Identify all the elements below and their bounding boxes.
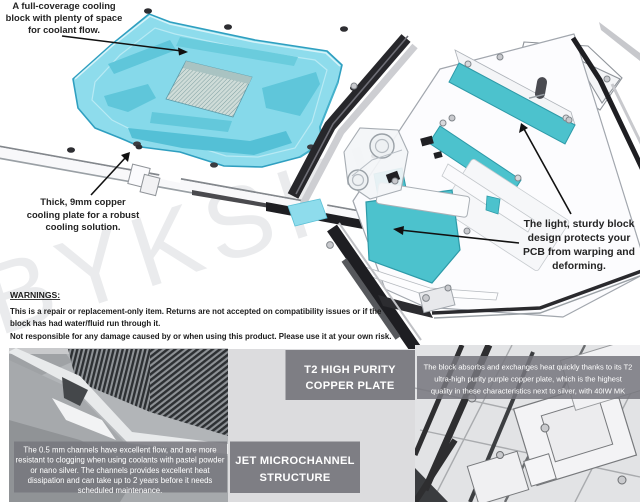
svg-text:STRUCTURE: STRUCTURE bbox=[259, 472, 330, 484]
svg-text:T2 HIGH PURITY: T2 HIGH PURITY bbox=[304, 364, 396, 376]
svg-text:quality in these characteristi: quality in these characteristics next to… bbox=[431, 387, 625, 396]
svg-text:deforming.: deforming. bbox=[552, 261, 606, 272]
svg-text:COPPER PLATE: COPPER PLATE bbox=[305, 380, 394, 392]
svg-text:The light, sturdy block: The light, sturdy block bbox=[524, 219, 635, 230]
svg-text:or nano silver. The channels p: or nano silver. The channels provides ex… bbox=[30, 466, 210, 475]
svg-text:block with plenty of space: block with plenty of space bbox=[6, 12, 123, 23]
svg-text:Not responsible for any damage: Not responsible for any damage caused by… bbox=[10, 332, 391, 341]
svg-text:JET MICROCHANNEL: JET MICROCHANNEL bbox=[235, 455, 354, 467]
svg-text:Thick, 9mm copper: Thick, 9mm copper bbox=[40, 196, 126, 207]
svg-text:A full-coverage cooling: A full-coverage cooling bbox=[12, 0, 116, 11]
svg-text:block has had water/fluid run: block has had water/fluid run through it… bbox=[10, 319, 160, 328]
svg-text:PCB from warping and: PCB from warping and bbox=[523, 247, 635, 258]
svg-text:ultra-high purity purple coppe: ultra-high purity purple copper plate, w… bbox=[434, 375, 623, 384]
svg-text:WARNINGS:: WARNINGS: bbox=[10, 290, 60, 300]
svg-text:cooling plate for a robust: cooling plate for a robust bbox=[27, 209, 140, 220]
svg-text:dissipation and can take up to: dissipation and can take up to 2 years b… bbox=[28, 476, 213, 485]
svg-text:scheduled maintenance.: scheduled maintenance. bbox=[78, 486, 163, 495]
svg-text:The block absorbs and exchange: The block absorbs and exchanges heat qui… bbox=[424, 363, 633, 372]
svg-text:resistant to clogging when usi: resistant to clogging when using coolant… bbox=[16, 456, 225, 465]
svg-text:cooling solution.: cooling solution. bbox=[46, 221, 121, 232]
svg-text:This is a repair or replacemen: This is a repair or replacement-only ite… bbox=[10, 307, 382, 316]
svg-text:The 0.5 mm channels have excel: The 0.5 mm channels have excellent flow,… bbox=[23, 446, 216, 455]
svg-text:for coolant flow.: for coolant flow. bbox=[28, 24, 100, 35]
svg-text:design protects your: design protects your bbox=[528, 233, 631, 244]
